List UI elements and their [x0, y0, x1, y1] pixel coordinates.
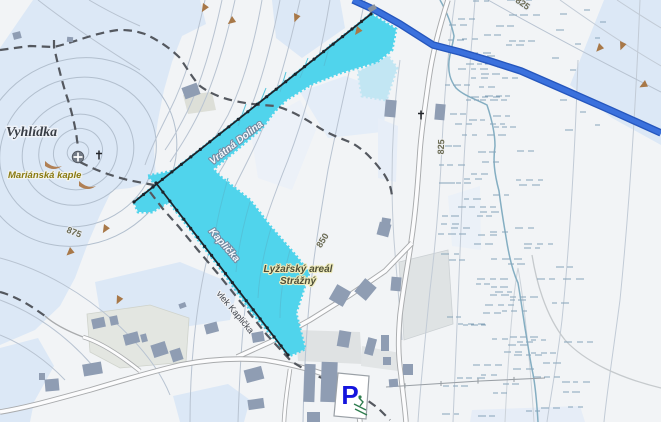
- svg-text:825: 825: [436, 139, 447, 154]
- svg-text:Vyhlídka: Vyhlídka: [6, 125, 57, 140]
- svg-text:Lyžařský areál: Lyžařský areál: [264, 264, 333, 275]
- svg-text:Strážný: Strážný: [280, 276, 317, 287]
- svg-text:Mariánská kaple: Mariánská kaple: [8, 170, 82, 181]
